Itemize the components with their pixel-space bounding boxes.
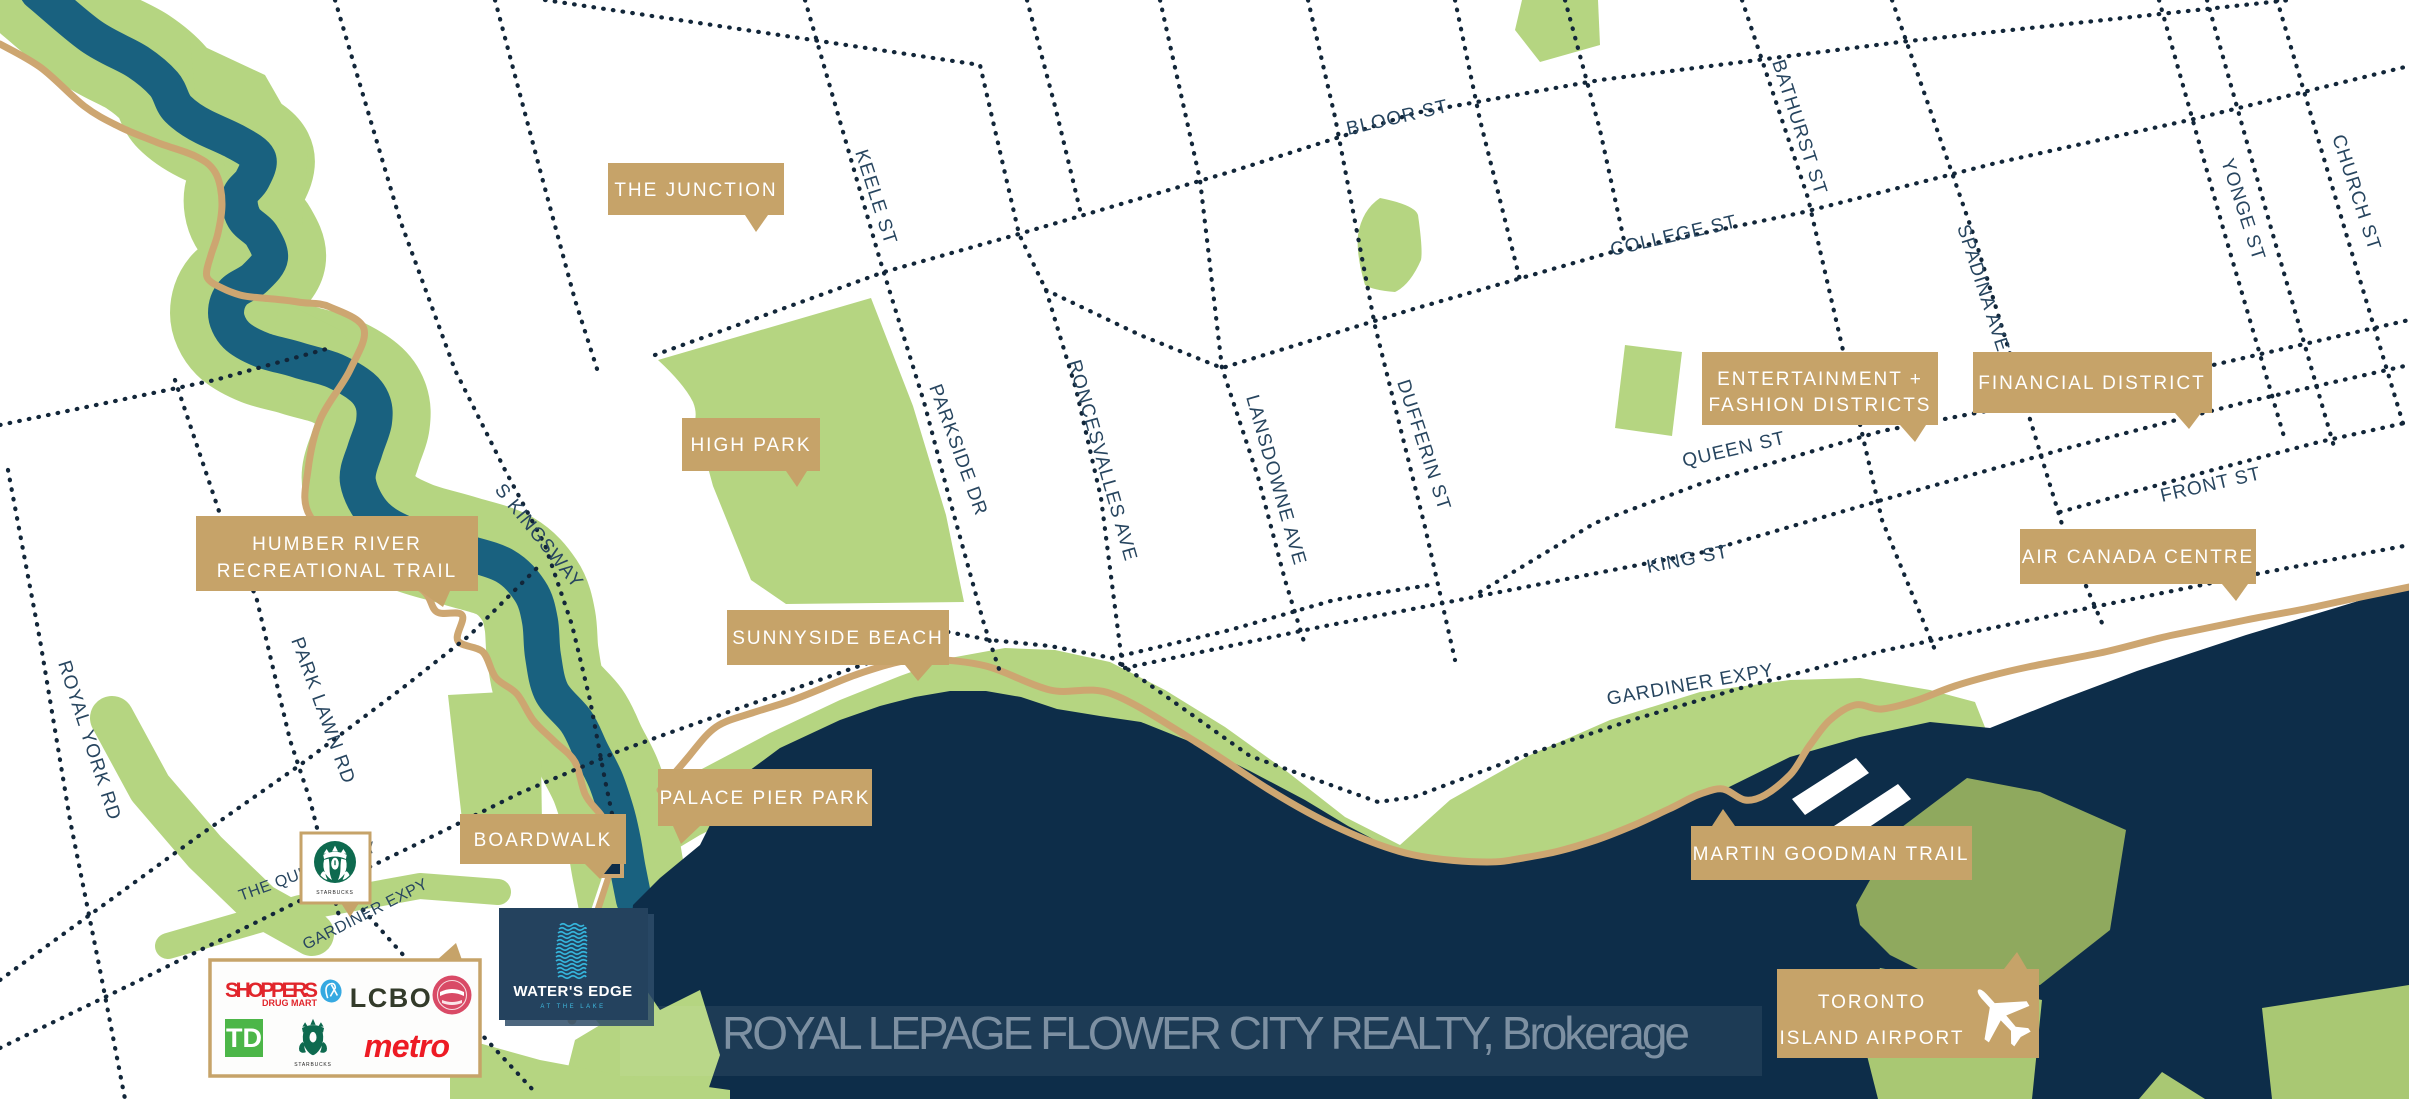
svg-text:metro: metro <box>364 1028 450 1064</box>
svg-text:FINANCIAL DISTRICT: FINANCIAL DISTRICT <box>1978 373 2205 394</box>
svg-text:HUMBER RIVER: HUMBER RIVER <box>252 534 422 555</box>
svg-text:FASHION DISTRICTS: FASHION DISTRICTS <box>1709 395 1932 416</box>
svg-text:TORONTO: TORONTO <box>1818 992 1926 1013</box>
svg-text:DRUG MART: DRUG MART <box>262 998 318 1008</box>
svg-text:WATER'S EDGE: WATER'S EDGE <box>513 983 632 1000</box>
svg-text:ENTERTAINMENT +: ENTERTAINMENT + <box>1717 369 1923 390</box>
svg-text:ISLAND AIRPORT: ISLAND AIRPORT <box>1780 1028 1965 1049</box>
svg-text:BOARDWALK: BOARDWALK <box>474 830 613 851</box>
svg-text:AIR CANADA CENTRE: AIR CANADA CENTRE <box>2022 547 2254 568</box>
svg-text:THE JUNCTION: THE JUNCTION <box>614 180 777 201</box>
svg-text:TD: TD <box>226 1023 262 1053</box>
svg-text:SUNNYSIDE BEACH: SUNNYSIDE BEACH <box>732 628 944 649</box>
svg-text:STARBUCKS: STARBUCKS <box>316 890 353 896</box>
svg-text:MARTIN GOODMAN TRAIL: MARTIN GOODMAN TRAIL <box>1693 844 1970 865</box>
svg-text:ROYAL LEPAGE FLOWER CITY REALT: ROYAL LEPAGE FLOWER CITY REALTY, Brokera… <box>722 1007 1690 1059</box>
svg-text:AT THE LAKE: AT THE LAKE <box>540 1004 605 1010</box>
svg-text:LCBO: LCBO <box>350 983 433 1013</box>
svg-text:PALACE PIER PARK: PALACE PIER PARK <box>660 788 871 809</box>
svg-text:STARBUCKS: STARBUCKS <box>294 1062 331 1068</box>
svg-text:HIGH PARK: HIGH PARK <box>690 435 811 456</box>
svg-text:RECREATIONAL TRAIL: RECREATIONAL TRAIL <box>217 561 457 582</box>
